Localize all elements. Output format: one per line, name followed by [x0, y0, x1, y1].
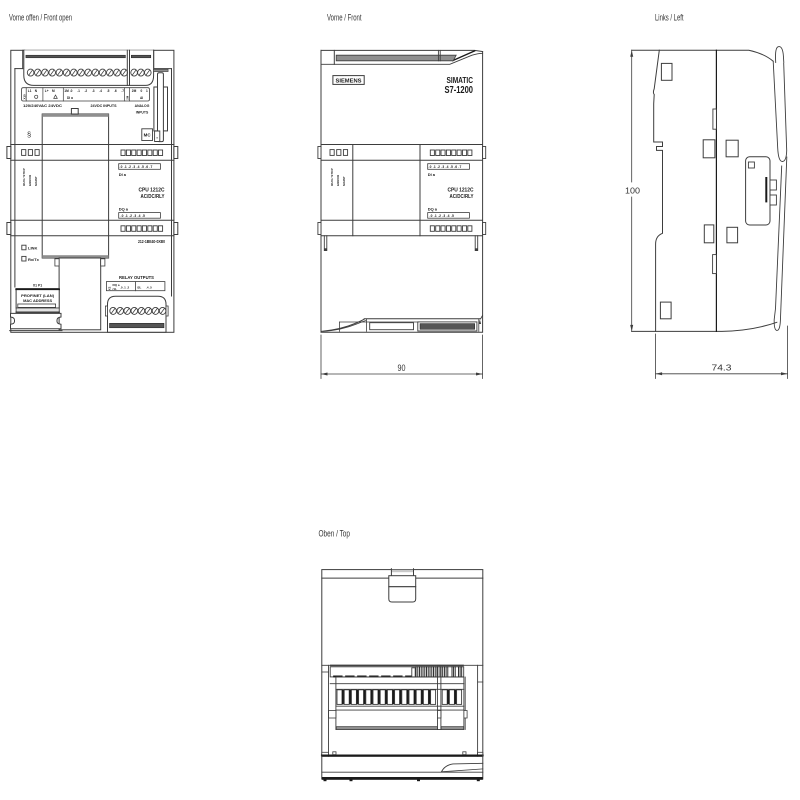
- svg-text:X1 P1: X1 P1: [33, 284, 42, 288]
- svg-text:.4 .5: .4 .5: [146, 286, 152, 290]
- svg-text:SIMATIC: SIMATIC: [447, 75, 474, 85]
- svg-text:212-1BE40-0XB0: 212-1BE40-0XB0: [138, 239, 166, 244]
- svg-text:.7: .7: [121, 89, 124, 93]
- svg-text:RELAY OUTPUTS: RELAY OUTPUTS: [119, 275, 154, 280]
- svg-text:1: 1: [146, 89, 148, 93]
- svg-text:0: 0: [141, 89, 143, 93]
- svg-text:.5: .5: [107, 89, 110, 93]
- svg-text:S7-1200: S7-1200: [445, 85, 474, 96]
- svg-text:2M: 2M: [132, 89, 137, 93]
- svg-text:X10: X10: [22, 94, 26, 100]
- svg-text:100: 100: [625, 185, 640, 195]
- svg-text:Vorne / Front: Vorne / Front: [327, 13, 362, 23]
- svg-text:AC/DC/RLY: AC/DC/RLY: [141, 194, 165, 200]
- svg-text:§: §: [27, 130, 31, 139]
- svg-text:Links / Left: Links / Left: [655, 13, 684, 23]
- svg-text:L1: L1: [28, 89, 32, 93]
- svg-text:MAINT: MAINT: [342, 176, 346, 186]
- svg-text:PROFINET (LAN): PROFINET (LAN): [21, 293, 55, 298]
- svg-text:M: M: [52, 89, 55, 93]
- svg-text:.0 .1 .2 .3 .4 .5: .0 .1 .2 .3 .4 .5: [121, 214, 145, 218]
- svg-text:.0 .1 .2 .3 .4 .5 .6 .7: .0 .1 .2 .3 .4 .5 .6 .7: [120, 165, 153, 169]
- svg-text:.2: .2: [85, 89, 88, 93]
- svg-text:RUN / STOP: RUN / STOP: [330, 168, 334, 186]
- svg-text:Oben / Top: Oben / Top: [319, 529, 351, 539]
- svg-text:1M: 1M: [64, 89, 69, 93]
- svg-text:DQ a: DQ a: [119, 207, 129, 212]
- svg-text:.0 .1 .2 .3 .4 .5 .6 .7: .0 .1 .2 .3 .4 .5 .6 .7: [429, 165, 462, 169]
- svg-text:Rx/Tx: Rx/Tx: [28, 257, 40, 262]
- svg-text:INPUTS: INPUTS: [136, 110, 149, 114]
- svg-text:ERROR: ERROR: [336, 174, 340, 186]
- svg-text:LINK: LINK: [28, 246, 37, 251]
- svg-text:CPU 1212C: CPU 1212C: [139, 188, 165, 194]
- svg-text:MAINT: MAINT: [34, 176, 38, 186]
- svg-text:ERROR: ERROR: [28, 174, 32, 186]
- svg-text:MAC ADDRESS: MAC ADDRESS: [23, 298, 52, 303]
- svg-text:.0: .0: [70, 89, 73, 93]
- svg-text:DI a: DI a: [119, 172, 127, 177]
- svg-text:.0 .1 .2 .3 .4 .5: .0 .1 .2 .3 .4 .5: [430, 214, 454, 218]
- svg-text:X2: X2: [107, 286, 111, 290]
- svg-text:RUN / STOP: RUN / STOP: [22, 168, 26, 186]
- svg-text:CPU 1212C: CPU 1212C: [448, 188, 474, 194]
- svg-text:90: 90: [398, 362, 406, 373]
- svg-text:AC/DC/RLY: AC/DC/RLY: [450, 194, 474, 200]
- svg-text:2M: 2M: [126, 95, 130, 100]
- svg-text:.1: .1: [77, 89, 80, 93]
- svg-text:AI: AI: [140, 96, 143, 100]
- svg-text:/2L: /2L: [137, 286, 142, 290]
- svg-text:.0 .1 .2: .0 .1 .2: [120, 286, 130, 290]
- svg-text:120/240VAC 24VDC: 120/240VAC 24VDC: [23, 104, 63, 108]
- svg-text:L+: L+: [45, 89, 49, 93]
- svg-text:24VDC INPUTS: 24VDC INPUTS: [91, 104, 118, 108]
- svg-text:DI a: DI a: [428, 172, 436, 177]
- svg-text:Vorne offen / Front open: Vorne offen / Front open: [9, 13, 72, 23]
- svg-text:.3: .3: [92, 89, 95, 93]
- svg-text:ANALOG: ANALOG: [135, 104, 150, 108]
- svg-text:DQ a: DQ a: [428, 207, 438, 212]
- svg-text:MC: MC: [144, 133, 152, 138]
- svg-text:74.3: 74.3: [712, 362, 732, 372]
- svg-text:/1L: /1L: [113, 287, 118, 291]
- svg-text:.4: .4: [99, 89, 102, 93]
- svg-text:.6: .6: [114, 89, 117, 93]
- svg-text:DI a: DI a: [67, 96, 73, 100]
- svg-text:SIEMENS: SIEMENS: [336, 78, 362, 84]
